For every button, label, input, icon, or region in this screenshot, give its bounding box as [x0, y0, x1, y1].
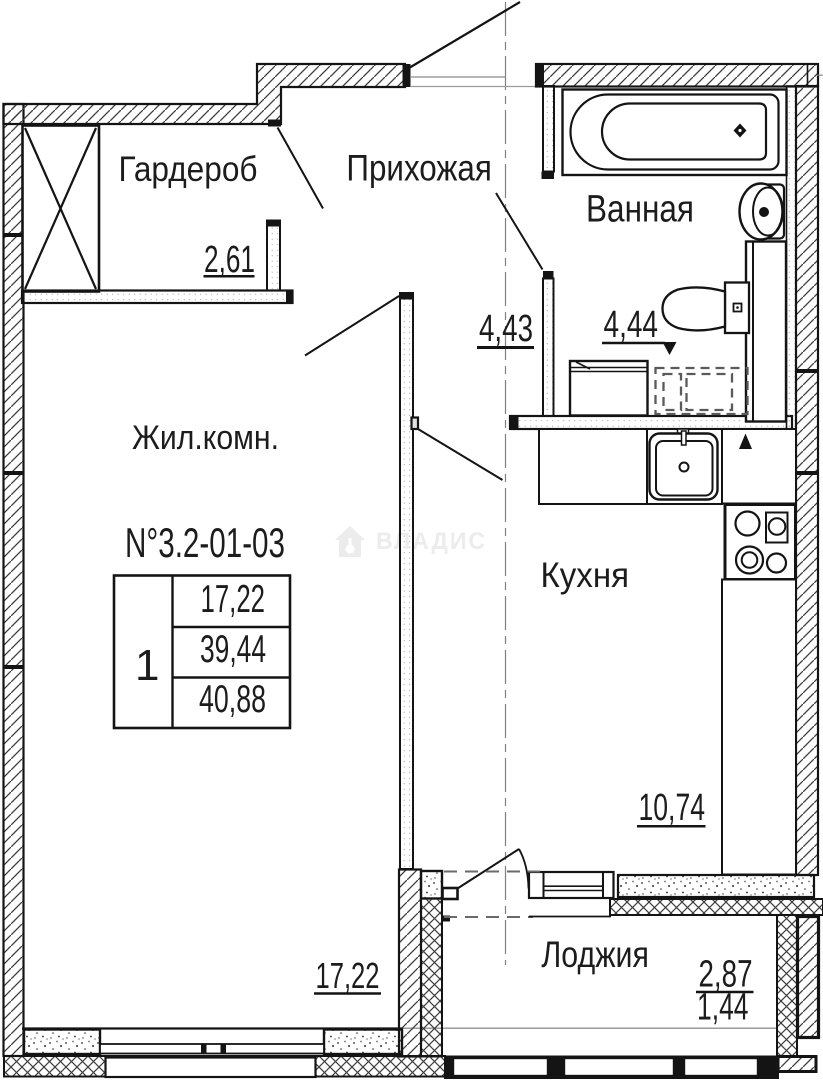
svg-text:2,61: 2,61 — [204, 239, 255, 281]
svg-text:39,44: 39,44 — [200, 628, 266, 671]
svg-text:4,44: 4,44 — [604, 304, 659, 346]
svg-text:40,88: 40,88 — [199, 678, 266, 721]
svg-text:Ванная: Ванная — [586, 189, 694, 231]
svg-text:Кухня: Кухня — [541, 556, 630, 595]
svg-text:1: 1 — [135, 641, 159, 690]
svg-text:10,74: 10,74 — [639, 787, 706, 829]
svg-text:Лоджия: Лоджия — [541, 934, 649, 975]
svg-text:17,22: 17,22 — [201, 578, 266, 621]
svg-text:ВЛАДИС: ВЛАДИС — [376, 528, 487, 555]
svg-text:Прихожая: Прихожая — [346, 148, 492, 189]
svg-text:Жил.комн.: Жил.комн. — [132, 419, 279, 457]
svg-text:N°3.2-01-03: N°3.2-01-03 — [125, 519, 285, 566]
svg-text:4,43: 4,43 — [479, 308, 533, 350]
svg-text:17,22: 17,22 — [316, 955, 380, 996]
svg-text:1,44: 1,44 — [697, 987, 749, 1029]
svg-text:Гардероб: Гардероб — [119, 150, 258, 189]
